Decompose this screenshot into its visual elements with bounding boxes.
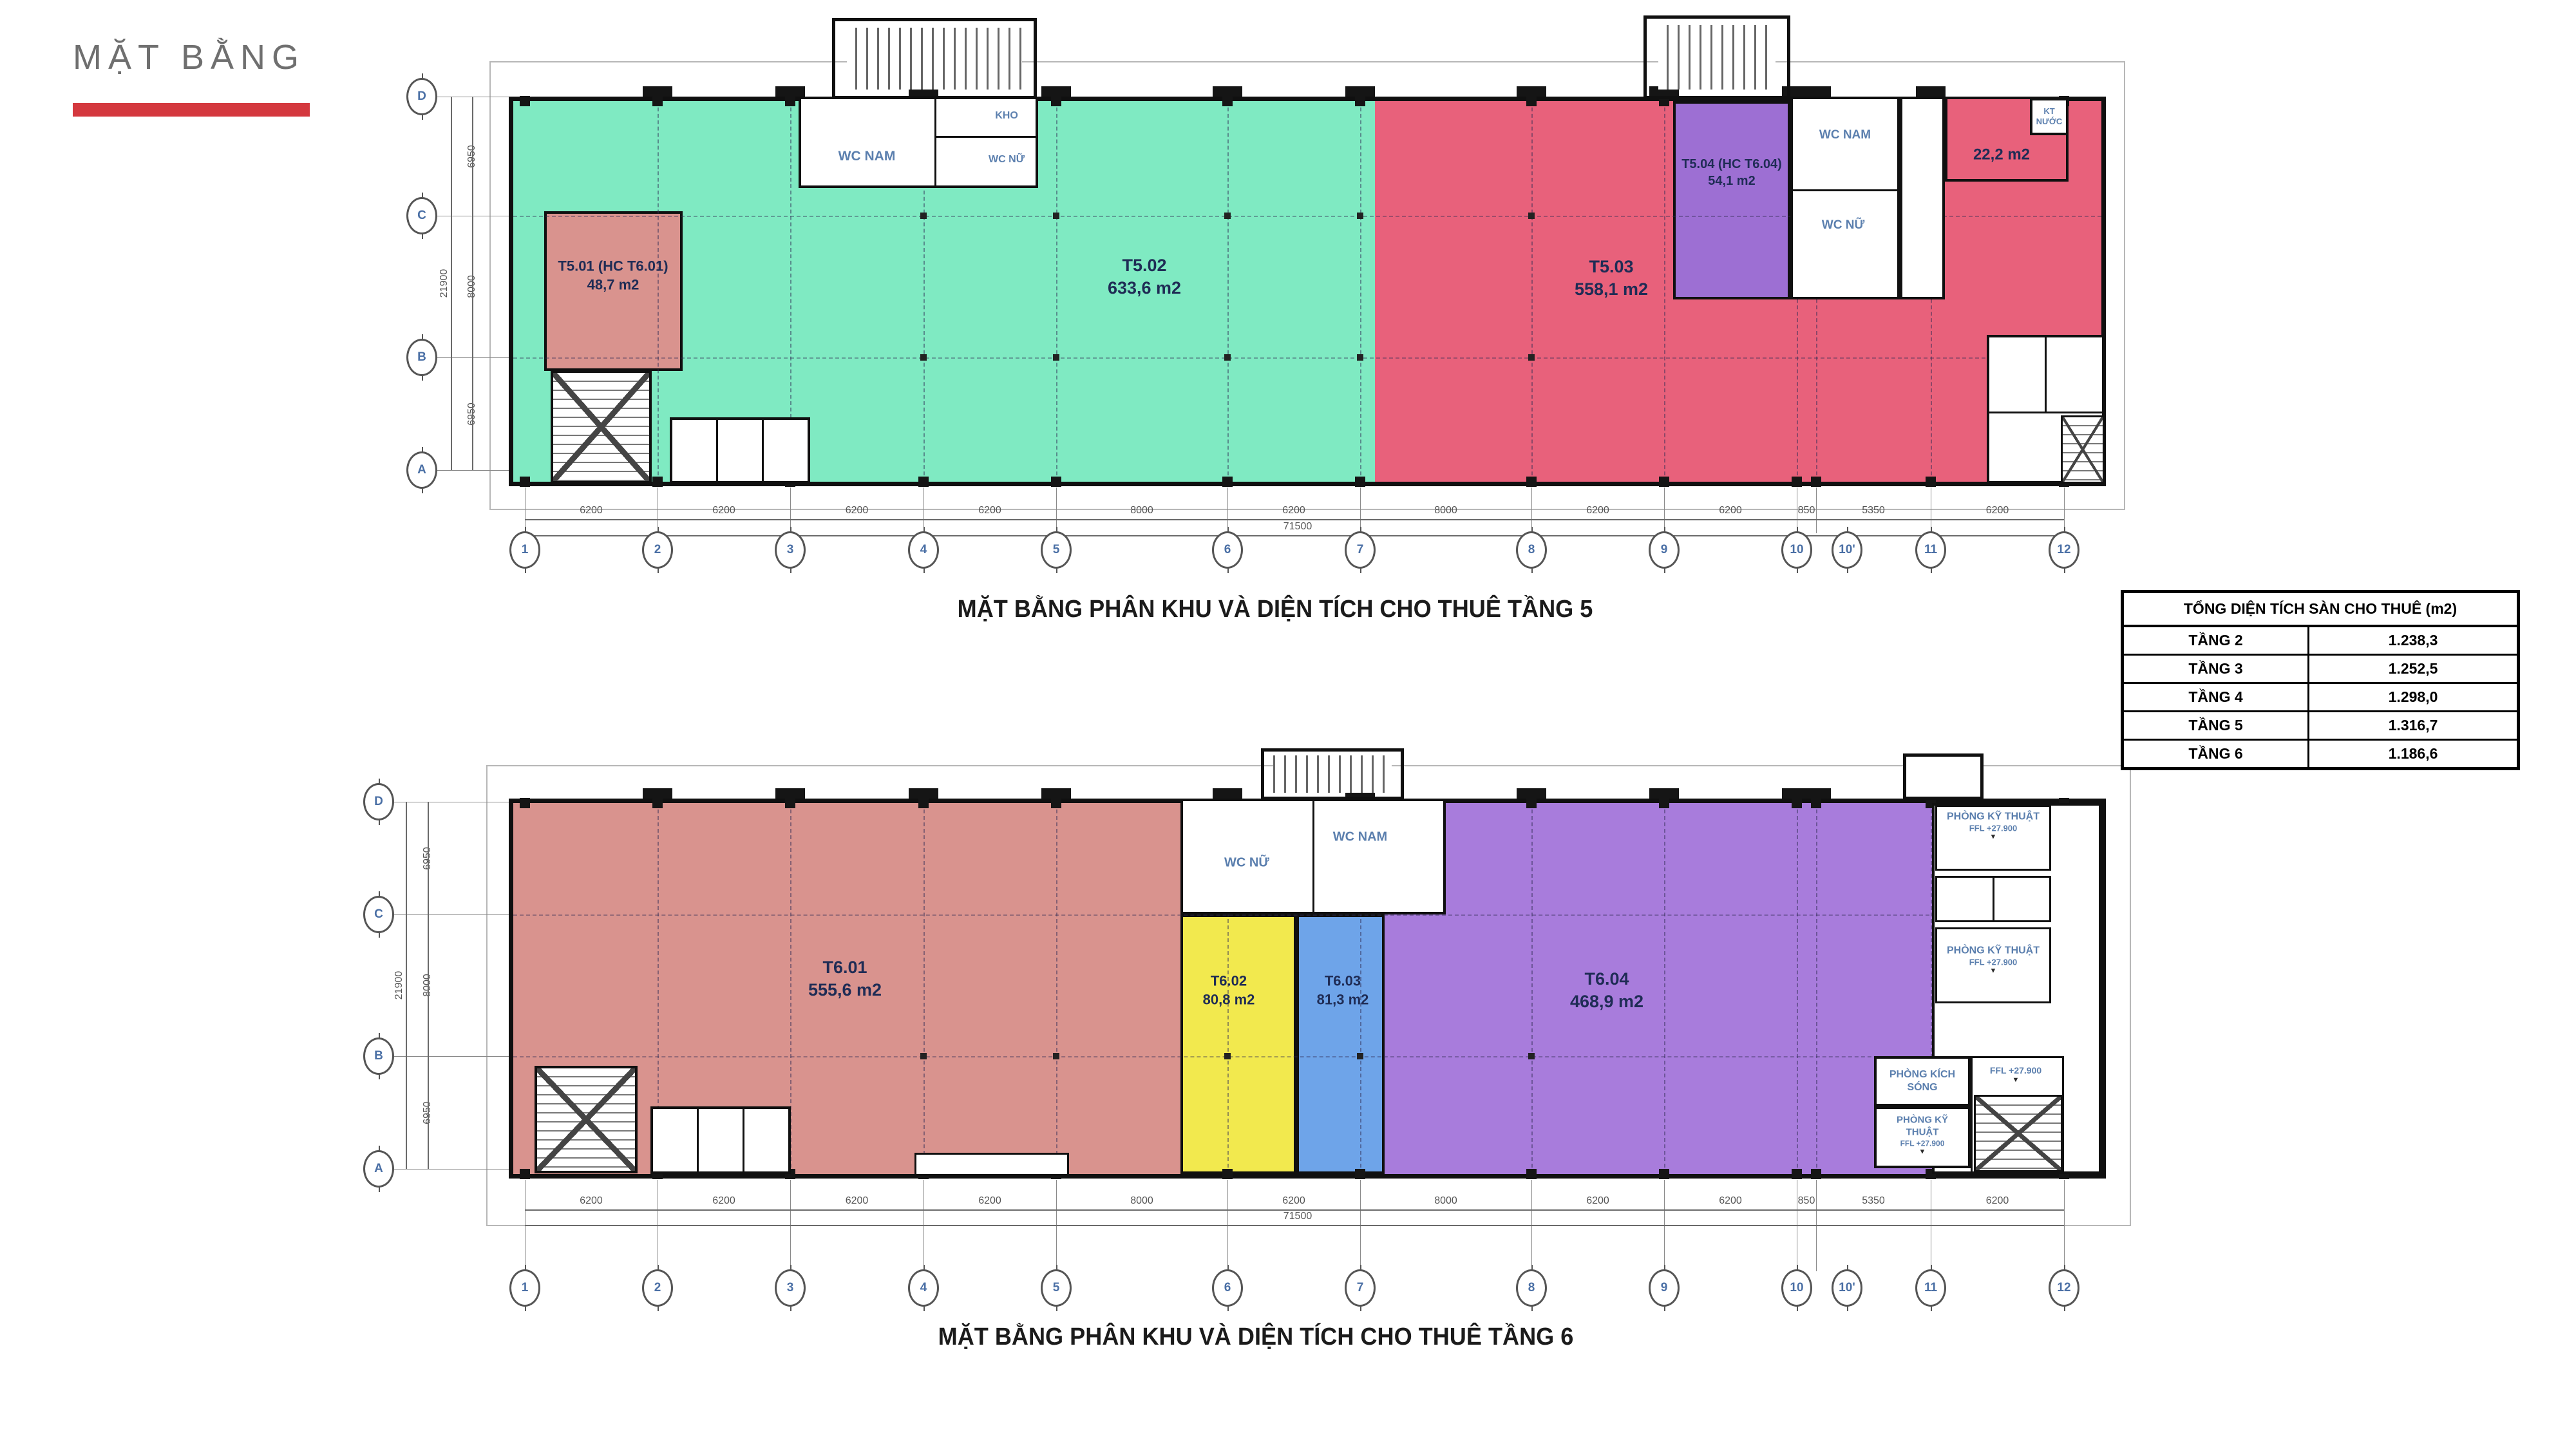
grid-bubble-row: C [406, 197, 437, 234]
zone-label-22m2: 22,2 m2 [1973, 144, 2030, 164]
dimension-line [451, 97, 452, 470]
grid-bubble-row: A [363, 1150, 394, 1188]
dimension-total: 71500 [1283, 521, 1312, 533]
zone-t6-03 [1296, 914, 1385, 1174]
ffl-marker-icon: ▼ [1880, 1148, 1964, 1155]
dimension-line [472, 97, 473, 470]
title-underline [73, 103, 310, 117]
exterior-shaft [1261, 748, 1404, 800]
corridor-f5 [1900, 97, 1945, 299]
grid-bubble-col: 7 [1345, 1269, 1376, 1307]
dimension-label: 6950 [466, 145, 478, 168]
dimension-total: 21900 [393, 971, 405, 1000]
stair-ffl-label: FFL +27.900 ▼ [1990, 1065, 2041, 1084]
grid-bubble-row: D [406, 78, 437, 115]
grid-bubble-col: 1 [509, 1269, 540, 1307]
lift-cell [1937, 878, 1994, 920]
zone-label-t6-02: T6.0280,8 m2 [1203, 972, 1255, 1009]
grid-bubble-col: 12 [2049, 531, 2079, 569]
ffl-marker-icon: ▼ [1947, 968, 2040, 975]
grid-bubble-col: 2 [642, 531, 673, 569]
zone-label-t6-03: T6.0381,3 m2 [1317, 972, 1369, 1009]
table-row: TẦNG 51.316,7 [2123, 712, 2519, 740]
dimension-label: 6950 [422, 847, 433, 870]
grid-bubble-col: 12 [2049, 1269, 2079, 1307]
wc-nu-label: WC NỮ [989, 153, 1025, 166]
grid-bubble-col: 3 [775, 531, 806, 569]
stairs-left-f5 [551, 370, 652, 484]
tech-room-2-label: PHÒNG KỸ THUẬT FFL +27.900 ▼ [1947, 944, 2040, 974]
lift-cell [2047, 337, 2102, 412]
page-title: MẶT BẰNG [73, 37, 305, 77]
exterior-stair-shaft [832, 18, 1037, 99]
kho-label: KHO [995, 109, 1018, 122]
grid-bubble-col: 6 [1212, 531, 1243, 569]
kho-wc-nu-room [936, 99, 1036, 185]
grid-bubble-row: B [363, 1037, 394, 1075]
ffl-marker-icon: ▼ [1947, 834, 2040, 841]
elevators-left-f5 [670, 417, 810, 484]
exterior-shaft [1903, 753, 1984, 800]
lift-cell [672, 420, 718, 481]
stairs-right-f6 [1974, 1095, 2063, 1172]
grid-bubble-col: 3 [775, 1269, 806, 1307]
grid-bubble-col: 4 [908, 1269, 939, 1307]
lift-cell [699, 1109, 744, 1171]
grid-bubble-row: C [363, 896, 394, 933]
zone-t6-04 [1385, 803, 1932, 1174]
table-row: TẦNG 31.252,5 [2123, 655, 2519, 683]
grid-bubble-col: 8 [1516, 531, 1547, 569]
wc-nu-label: WC NỮ [1822, 218, 1864, 233]
lift-cells [1989, 337, 2102, 413]
zone-t5-04 [1673, 101, 1790, 299]
dimension-total: 21900 [439, 269, 450, 298]
wc-block-f6 [1180, 799, 1446, 914]
grid-bubble-col: 10 [1781, 531, 1812, 569]
table-row: TẦNG 61.186,6 [2123, 740, 2519, 769]
wc-nam-label: WC NAM [1819, 128, 1871, 143]
grid-bubble-col: 5 [1041, 1269, 1072, 1307]
ffl-marker-icon: ▼ [1990, 1076, 2041, 1083]
wc-nam-room [1314, 801, 1444, 912]
grid-bubble-col: 10' [1832, 531, 1862, 569]
grid-bubble-col: 11 [1915, 1269, 1946, 1307]
kt-nuoc-label: KT NƯỚC [2031, 106, 2067, 128]
lift-cell [764, 420, 808, 481]
dimension-label: 8000 [422, 974, 433, 997]
grid-bubble-col: 2 [642, 1269, 673, 1307]
table-row: TẦNG 41.298,0 [2123, 683, 2519, 712]
lift-cell [1994, 878, 2050, 920]
zone-label-t5-02: T5.02633,6 m2 [1108, 254, 1181, 299]
wc-nam-label: WC NAM [1333, 829, 1387, 846]
floor5-caption: MẶT BẰNG PHÂN KHU VÀ DIỆN TÍCH CHO THUÊ … [958, 596, 1593, 623]
zone-label-t5-04: T5.04 (HC T6.04)54,1 m2 [1681, 156, 1782, 189]
grid-bubble-col: 9 [1649, 531, 1680, 569]
stairs-right-f5 [2061, 415, 2105, 484]
elevators-left-f6 [650, 1106, 791, 1174]
exterior-stair-shaft [1643, 15, 1790, 99]
grid-bubble-col: 9 [1649, 1269, 1680, 1307]
grid-bubble-col: 8 [1516, 1269, 1547, 1307]
dimension-label: 6950 [466, 402, 478, 426]
grid-bubble-row: D [363, 783, 394, 820]
dimension-line [428, 802, 429, 1169]
lift-cell [744, 1109, 788, 1171]
grid-bubble-col: 10 [1781, 1269, 1812, 1307]
dimension-line [406, 802, 407, 1169]
lift-cell [718, 420, 764, 481]
area-summary-table: TỔNG DIỆN TÍCH SÀN CHO THUÊ (m2) TẦNG 21… [2121, 590, 2520, 770]
zone-label-t6-04: T6.04468,9 m2 [1570, 968, 1643, 1013]
grid-bubble-col: 1 [509, 531, 540, 569]
grid-bubble-col: 4 [908, 531, 939, 569]
lift-cell [653, 1109, 699, 1171]
zone-label-t5-03: T5.03558,1 m2 [1575, 256, 1648, 301]
stairs-left-f6 [535, 1066, 638, 1173]
grid-bubble-col: 7 [1345, 531, 1376, 569]
dimension-label: 8000 [466, 275, 478, 298]
grid-bubble-col: 10' [1832, 1269, 1862, 1307]
grid-bubble-row: A [406, 451, 437, 489]
dimension-label: 6950 [422, 1101, 433, 1124]
grid-bubble-col: 5 [1041, 531, 1072, 569]
wc-nam-label: WC NAM [838, 148, 896, 165]
zone-label-t6-01: T6.01555,6 m2 [808, 956, 882, 1001]
wc-nu-label: WC NỮ [1224, 855, 1269, 871]
wc-nam-room [1793, 99, 1897, 191]
elevators-right-f6 [1935, 876, 2051, 922]
floor-plan-sheet: MẶT BẰNG WC NAM KHO WC NỮ WC NAM WC NỮ K… [0, 0, 2576, 1449]
grid-bubble-row: B [406, 339, 437, 376]
floor6-caption: MẶT BẰNG PHÂN KHU VÀ DIỆN TÍCH CHO THUÊ … [938, 1323, 1574, 1351]
table-row: TẦNG 21.238,3 [2123, 626, 2519, 655]
wc-nam-room [801, 99, 936, 185]
kich-song-label: PHÒNG KÍCH SÓNG [1880, 1068, 1964, 1094]
table-title: TỔNG DIỆN TÍCH SÀN CHO THUÊ (m2) [2123, 592, 2519, 627]
zone-t6-02 [1180, 914, 1296, 1174]
dimension-line [525, 519, 2064, 520]
entry-notch-f6 [914, 1153, 1069, 1176]
tech-room-1-label: PHÒNG KỸ THUẬT FFL +27.900 ▼ [1947, 810, 2040, 840]
tech-room-3-label: PHÒNG KỸ THUẬT FFL +27.900 ▼ [1880, 1114, 1964, 1155]
grid-bubble-col: 6 [1212, 1269, 1243, 1307]
lift-cell [1989, 337, 2047, 412]
zone-label-t5-01: T5.01 (HC T6.01)48,7 m2 [558, 257, 668, 294]
kho-room [936, 99, 1036, 138]
grid-bubble-col: 11 [1915, 531, 1946, 569]
dimension-line [525, 535, 2064, 536]
